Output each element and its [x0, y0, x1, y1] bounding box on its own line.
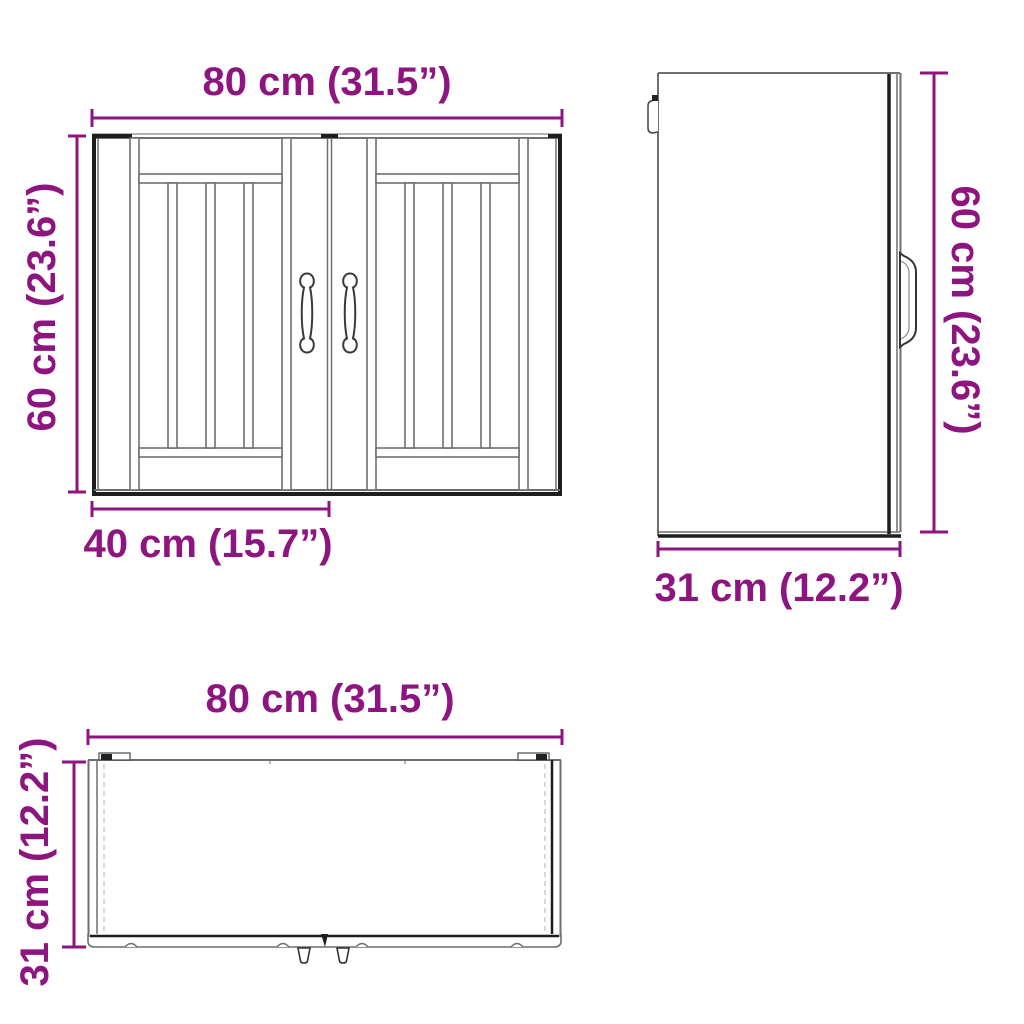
front-width-label: 80 cm (31.5”)	[202, 60, 451, 104]
door-slat	[206, 183, 215, 448]
bottom-depth-dimension	[62, 762, 86, 947]
bottom-cabinet-outline	[88, 760, 561, 937]
right-door	[343, 138, 528, 490]
door-slat	[405, 183, 414, 448]
strip-bump	[356, 944, 368, 948]
handle-knob	[337, 948, 349, 963]
front-width-dimension	[92, 109, 562, 127]
bottom-width-label: 80 cm (31.5”)	[205, 677, 454, 721]
front-height-label: 60 cm (23.6”)	[20, 182, 64, 431]
strip-bump	[125, 944, 137, 948]
bottom-width-dimension	[88, 729, 562, 745]
bottom-dimension-labels: 80 cm (31.5”) 31 cm (12.2”)	[13, 677, 455, 987]
left-door-handle	[300, 274, 314, 353]
door-stile	[519, 138, 528, 490]
side-cabinet-outline	[658, 73, 901, 536]
side-height-label: 60 cm (23.6”)	[943, 185, 987, 434]
dimension-diagram: 80 cm (31.5”) 60 cm (23.6”) 40 cm (15.7”…	[0, 0, 1024, 1024]
front-height-dimension	[68, 136, 86, 492]
cabinet-dimension-drawing: 80 cm (31.5”) 60 cm (23.6”) 40 cm (15.7”…	[0, 0, 1024, 1024]
bottom-hinge-right	[518, 753, 549, 760]
bottom-hinge-left	[99, 753, 130, 760]
right-door-handle	[343, 274, 357, 353]
side-depth-label: 31 cm (12.2”)	[654, 566, 903, 610]
door-stile	[367, 138, 376, 490]
handle-knob	[298, 948, 310, 963]
door-stile	[282, 138, 291, 490]
door-slat	[443, 183, 452, 448]
strip-bump	[511, 944, 523, 948]
side-dimension-labels: 60 cm (23.6”) 31 cm (12.2”)	[654, 185, 987, 610]
door-top-rail	[139, 174, 282, 183]
door-bottom-rail	[376, 448, 519, 457]
front-door-width-dimension	[92, 501, 329, 517]
door-top-rail	[376, 174, 519, 183]
door-stile	[130, 138, 139, 490]
bottom-view-handles	[298, 948, 349, 963]
bottom-depth-label: 31 cm (12.2”)	[13, 737, 57, 986]
door-center-gap	[321, 136, 338, 490]
front-view: 80 cm (31.5”) 60 cm (23.6”) 40 cm (15.7”…	[20, 60, 562, 566]
strip-bump	[277, 944, 289, 948]
door-slat	[481, 183, 490, 448]
door-slat	[168, 183, 177, 448]
door-bottom-rail	[139, 448, 282, 457]
side-view: 60 cm (23.6”) 31 cm (12.2”)	[648, 73, 987, 610]
door-gap-notch	[321, 934, 328, 947]
front-door-width-label: 40 cm (15.7”)	[83, 522, 332, 566]
bottom-view: 80 cm (31.5”) 31 cm (12.2”)	[13, 677, 562, 987]
side-depth-dimension	[658, 541, 900, 557]
wall-mount-bracket	[648, 95, 658, 133]
left-door	[130, 138, 314, 490]
door-slat	[244, 183, 253, 448]
